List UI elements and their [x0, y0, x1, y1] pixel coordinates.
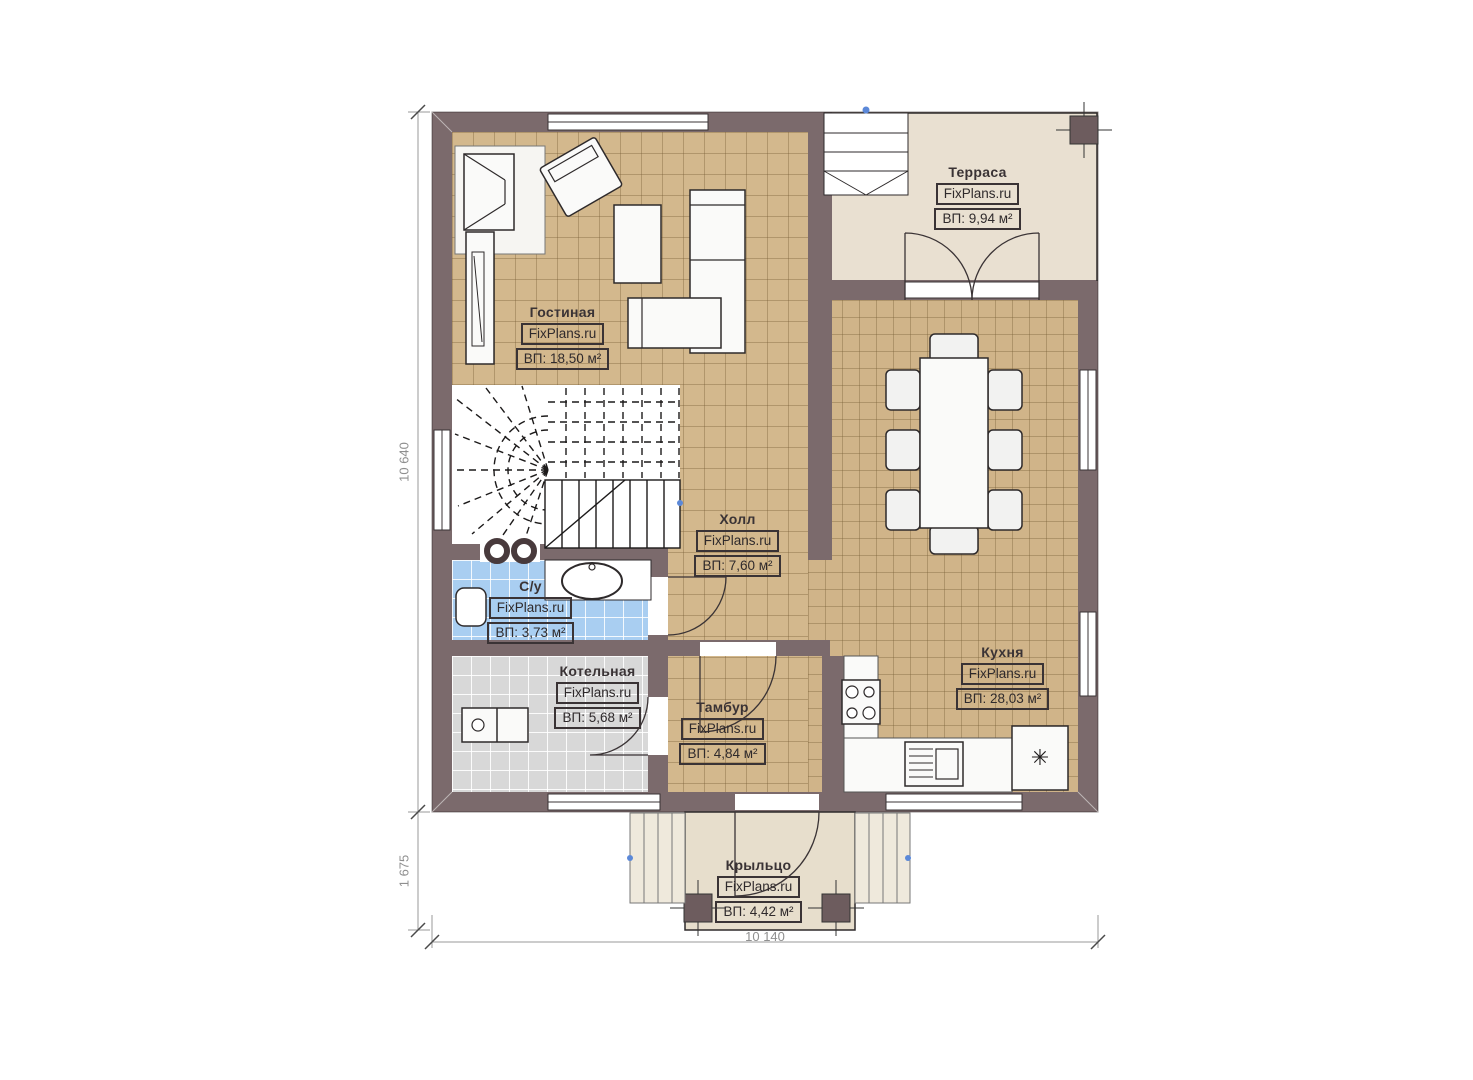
wall-outer-bottom [432, 792, 1098, 812]
room-label-kitchen: Кухня FixPlans.ru ВП: 28,03 м² [940, 644, 1065, 710]
room-name-porch: Крыльцо [696, 857, 821, 873]
area-box: ВП: 7,60 м² [694, 555, 780, 577]
room-label-living: Гостиная FixPlans.ru ВП: 18,50 м² [495, 304, 630, 370]
area-box: ВП: 28,03 м² [956, 688, 1050, 710]
room-label-bathroom: С/у FixPlans.ru ВП: 3,73 м² [468, 578, 593, 644]
watermark-box: FixPlans.ru [936, 183, 1020, 205]
wall-hall-dining [808, 300, 832, 560]
watermark-box: FixPlans.ru [696, 530, 780, 552]
room-name-bathroom: С/у [468, 578, 593, 594]
watermark-box: FixPlans.ru [681, 718, 765, 740]
dimension-left-total: 10 640 [397, 442, 412, 482]
watermark-box: FixPlans.ru [961, 663, 1045, 685]
room-name-living: Гостиная [495, 304, 630, 320]
room-label-vestibule: Тамбур FixPlans.ru ВП: 4,84 м² [660, 699, 785, 765]
room-label-terrace: Терраса FixPlans.ru ВП: 9,94 м² [905, 164, 1050, 230]
watermark-box: FixPlans.ru [521, 323, 605, 345]
area-box: ВП: 9,94 м² [934, 208, 1020, 230]
room-label-hall: Холл FixPlans.ru ВП: 7,60 м² [675, 511, 800, 577]
dimension-left-porch: 1 675 [397, 855, 412, 888]
floor-plan-page: ✳ Терраса FixPlans.ru ВП: 9,94 м² Гостин… [0, 0, 1473, 1080]
wall-outer-top [432, 112, 832, 132]
floor-staircase [452, 385, 680, 548]
wall-terrace-left [808, 112, 832, 300]
watermark-box: FixPlans.ru [489, 597, 573, 619]
wall-stairs-bathroom [452, 544, 668, 560]
area-box: ВП: 3,73 м² [487, 622, 573, 644]
room-name-kitchen: Кухня [940, 644, 1065, 660]
wall-hall-vestibule [668, 640, 830, 656]
room-name-hall: Холл [675, 511, 800, 527]
area-box: ВП: 5,68 м² [554, 707, 640, 729]
room-name-vestibule: Тамбур [660, 699, 785, 715]
area-box: ВП: 18,50 м² [516, 348, 610, 370]
room-name-terrace: Терраса [905, 164, 1050, 180]
room-label-boiler: Котельная FixPlans.ru ВП: 5,68 м² [535, 663, 660, 729]
wall-outer-right [1078, 280, 1098, 812]
area-box: ВП: 4,42 м² [715, 901, 801, 923]
area-box: ВП: 4,84 м² [679, 743, 765, 765]
wall-terrace-bottom [832, 280, 1098, 300]
wall-outer-left [432, 112, 452, 812]
fridge-icon: ✳ [1012, 726, 1068, 790]
dimension-bottom-total: 10 140 [745, 929, 785, 944]
floor-kitchen-dining [808, 300, 1078, 792]
room-label-porch: Крыльцо FixPlans.ru ВП: 4,42 м² [696, 857, 821, 923]
room-name-boiler: Котельная [535, 663, 660, 679]
watermark-box: FixPlans.ru [717, 876, 801, 898]
watermark-box: FixPlans.ru [556, 682, 640, 704]
wall-vestibule-kitchen [822, 656, 844, 792]
